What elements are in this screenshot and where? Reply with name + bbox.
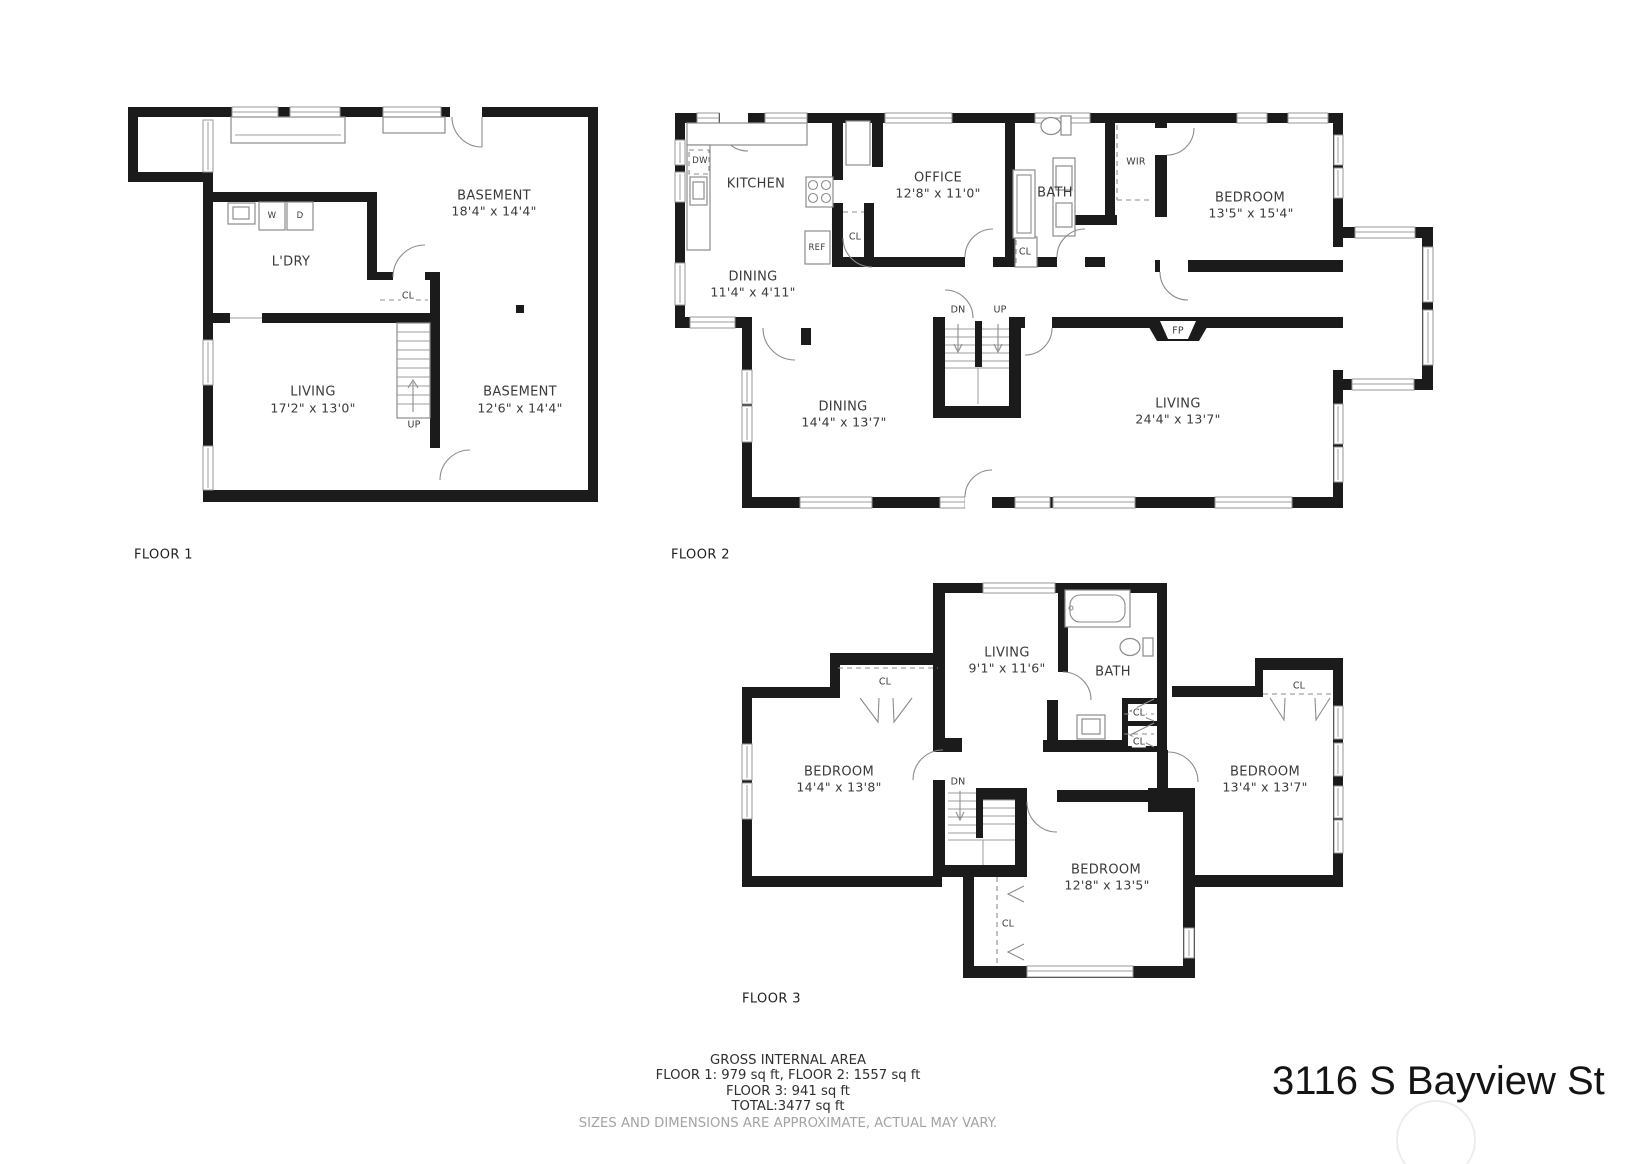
floor1-plan	[128, 107, 598, 502]
closet-label: CL	[1001, 919, 1015, 930]
door-arc-icon	[1063, 672, 1091, 700]
bathtub-icon	[1065, 590, 1130, 627]
window-icon	[232, 107, 441, 117]
closet-label: CL	[1018, 247, 1032, 258]
door-arc-icon	[440, 450, 470, 480]
shower-icon	[1013, 170, 1035, 238]
room-label-bedroom-f2: BEDROOM	[1215, 191, 1285, 206]
property-address: 3116 S Bayview St	[1272, 1059, 1612, 1104]
door-arc-icon	[1167, 128, 1194, 155]
room-dims-basement-lower: 12'6" x 14'4"	[477, 401, 562, 416]
closet-label: CL	[401, 291, 415, 302]
door-arc-icon	[913, 750, 943, 780]
closet-label: CL	[878, 677, 892, 688]
room-dims-bedroom-middle: 12'8" x 13'5"	[1064, 878, 1149, 893]
laundry-sink-icon	[228, 203, 255, 224]
door-arc-icon	[965, 229, 993, 257]
stairs-up-label: UP	[992, 305, 1007, 316]
floor2-title: FLOOR 2	[671, 548, 730, 563]
door-arc-icon	[452, 117, 482, 147]
room-dims-living-f2: 24'4" x 13'7"	[1135, 412, 1220, 427]
door-arc-icon	[1027, 802, 1057, 832]
fridge-label: REF	[808, 243, 825, 253]
room-label-office: OFFICE	[914, 171, 962, 186]
room-dims-office: 12'8" x 11'0"	[895, 186, 980, 201]
floor3-title: FLOOR 3	[742, 992, 801, 1007]
walk-in-robe-label: WIR	[1125, 157, 1146, 168]
room-label-bedroom-right: BEDROOM	[1230, 765, 1300, 780]
door-arc-icon	[1025, 328, 1052, 355]
area-floor3: FLOOR 3: 941 sq ft	[488, 1084, 1088, 1099]
room-label-bath-f3: BATH	[1095, 665, 1131, 680]
door-arc-icon	[1160, 272, 1188, 300]
pantry-shelf	[846, 121, 870, 165]
closet-label: CL	[1132, 708, 1146, 719]
room-dims-living-f1: 17'2" x 13'0"	[270, 401, 355, 416]
watermark-circle	[1397, 1101, 1475, 1164]
room-label-living-f2: LIVING	[1155, 397, 1200, 412]
stairs-dn-label: DN	[950, 305, 967, 316]
dishwasher-label: DW	[692, 156, 708, 166]
stairs-up-label: UP	[406, 420, 421, 431]
staircase-up	[397, 323, 430, 418]
room-label-bath-f2: BATH	[1037, 186, 1073, 201]
room-dims-bedroom-f2: 13'5" x 15'4"	[1208, 206, 1293, 221]
door-arc-icon	[763, 328, 795, 360]
door-arc-icon	[393, 245, 425, 277]
room-label-bedroom-middle: BEDROOM	[1071, 863, 1141, 878]
floor2-plan	[675, 113, 1433, 508]
room-label-basement-lower: BASEMENT	[483, 385, 557, 400]
door-arc-icon	[1168, 752, 1198, 782]
fireplace-label: FP	[1171, 326, 1185, 337]
toilet-icon	[1041, 116, 1071, 135]
area-floor1-floor2: FLOOR 1: 979 sq ft, FLOOR 2: 1557 sq ft	[488, 1068, 1088, 1083]
door-arc-icon	[965, 470, 992, 497]
room-label-kitchen: KITCHEN	[727, 177, 785, 192]
room-label-bedroom-left: BEDROOM	[804, 765, 874, 780]
room-label-dining: DINING	[818, 400, 867, 415]
closet-label: CL	[1292, 681, 1306, 692]
closet-label: CL	[848, 232, 862, 243]
room-dims-basement-upper: 18'4" x 14'4"	[451, 204, 536, 219]
room-label-dining-upper: DINING	[728, 270, 777, 285]
room-label-living-f3: LIVING	[984, 646, 1029, 661]
window-icon	[1334, 135, 1433, 482]
area-summary-heading: GROSS INTERNAL AREA	[488, 1053, 1088, 1068]
stove-icon	[806, 177, 833, 207]
floor-plan-drawing	[0, 0, 1647, 1164]
room-dims-bedroom-right: 13'4" x 13'7"	[1222, 780, 1307, 795]
dryer-label: D	[297, 211, 304, 221]
toilet-icon	[1120, 638, 1153, 656]
disclaimer-text: SIZES AND DIMENSIONS ARE APPROXIMATE, AC…	[488, 1116, 1088, 1131]
room-label-basement-upper: BASEMENT	[457, 189, 531, 204]
floor1-title: FLOOR 1	[134, 548, 193, 563]
room-dims-dining: 14'4" x 13'7"	[801, 415, 886, 430]
closet-label: CL	[1132, 737, 1146, 748]
washer-label: W	[268, 211, 277, 221]
area-total: TOTAL:3477 sq ft	[488, 1099, 1088, 1114]
bathroom-sink-icon	[1077, 715, 1105, 739]
room-dims-bedroom-left: 14'4" x 13'8"	[796, 780, 881, 795]
floor-plan-sheet: BASEMENT 18'4" x 14'4" L'DRY CL LIVING 1…	[0, 0, 1647, 1164]
stairs-dn-label: DN	[950, 777, 967, 788]
room-dims-dining-upper: 11'4" x 4'11"	[710, 285, 795, 300]
room-label-living-f1: LIVING	[290, 385, 335, 400]
room-label-laundry: L'DRY	[272, 255, 310, 270]
kitchen-sink-icon	[690, 177, 707, 205]
kitchen-counter	[687, 123, 807, 145]
area-summary: GROSS INTERNAL AREA FLOOR 1: 979 sq ft, …	[488, 1053, 1088, 1131]
room-dims-living-f3: 9'1" x 11'6"	[968, 661, 1045, 676]
